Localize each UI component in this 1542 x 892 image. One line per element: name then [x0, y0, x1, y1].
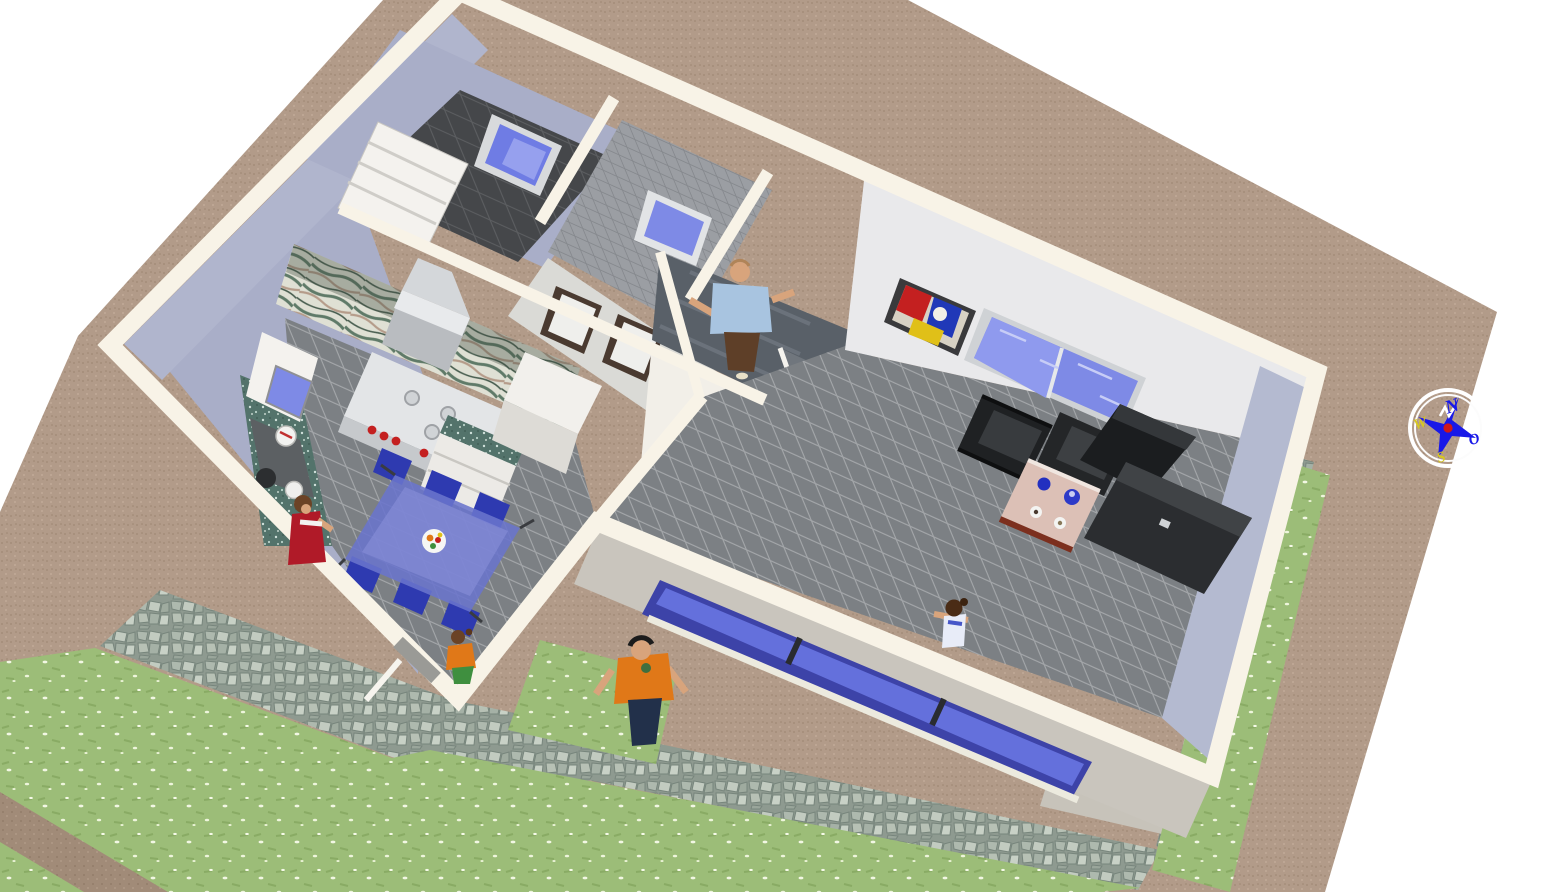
blue-cup	[1038, 478, 1051, 491]
render-canvas: N W S O	[0, 0, 1542, 892]
fruit-plate	[422, 529, 446, 553]
compass-center-dot	[1443, 423, 1452, 432]
aerial-3d-view[interactable]: N W S O	[0, 0, 1542, 892]
